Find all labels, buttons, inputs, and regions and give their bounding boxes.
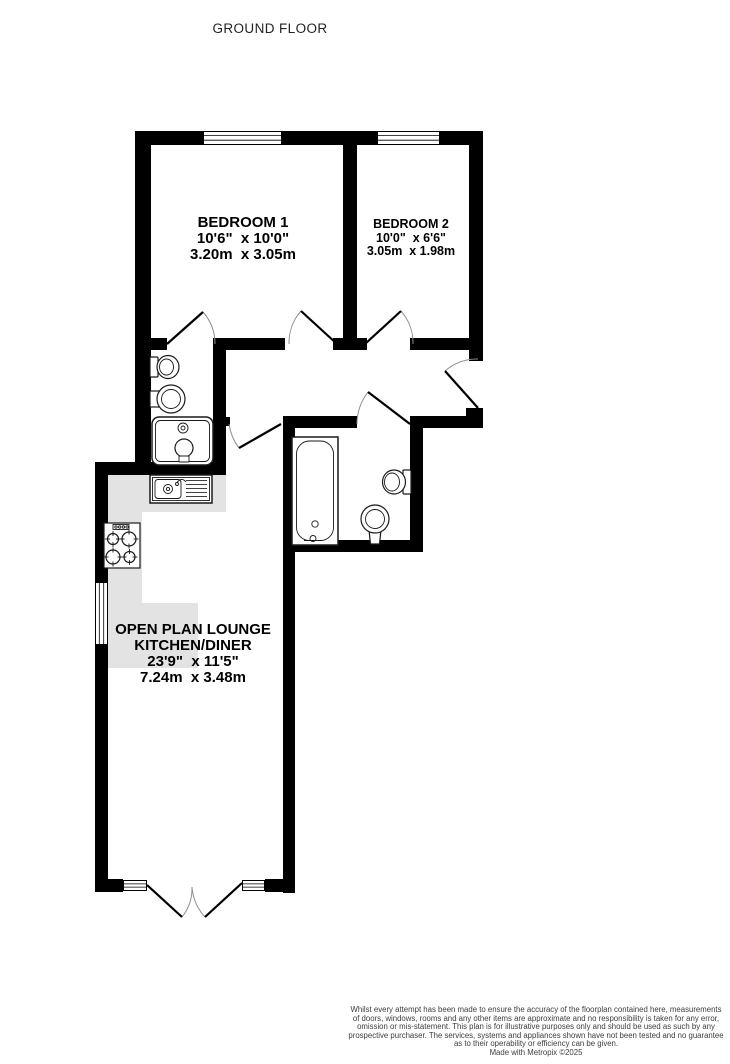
disclaimer: Whilst every attempt has been made to en…: [340, 1006, 730, 1057]
page-title: GROUND FLOOR: [145, 21, 395, 36]
wall-segment: [410, 416, 423, 552]
kitchen-sink-fixture: [150, 475, 212, 503]
bedroom2-size-imperial: 10'0" x 6'6": [341, 232, 481, 246]
bedroom2-name: BEDROOM 2: [341, 218, 481, 232]
hall-kitchen-door-arc: [229, 424, 239, 448]
hall-kitchen-door-leaf: [239, 424, 281, 448]
bathroom-toilet-fixture: [383, 470, 412, 494]
bedroom2-door-leaf: [365, 311, 401, 344]
bedroom2-window: [378, 132, 440, 145]
bathroom-basin-fixture: [361, 505, 389, 544]
patio-door-arc-left: [182, 887, 192, 917]
wall-segment: [410, 338, 483, 350]
door-arcs: [182, 311, 478, 917]
wall-segment: [135, 338, 167, 350]
ensuite-toilet-fixture: [150, 356, 179, 379]
bathroom-door-leaf: [368, 392, 410, 424]
patio-door-arc-right: [192, 887, 205, 917]
front-door-leaf: [445, 371, 478, 408]
wall-segment: [135, 131, 151, 475]
credit-line: Made with Metropix ©2025: [340, 1049, 730, 1058]
bathroom-door-arc: [357, 392, 368, 424]
bedroom1-size-metric: 3.20m x 3.05m: [163, 247, 323, 263]
lounge-label: OPEN PLAN LOUNGE KITCHEN/DINER 23'9" x 1…: [103, 622, 283, 686]
patio-sidelight-right: [243, 881, 265, 891]
wall-segment: [283, 416, 357, 428]
bedroom1-door-arc: [289, 311, 301, 344]
wall-segment: [95, 879, 123, 892]
bedroom2-label: BEDROOM 2 10'0" x 6'6" 3.05m x 1.98m: [341, 218, 481, 259]
bedroom1-label: BEDROOM 1 10'6" x 10'0" 3.20m x 3.05m: [163, 215, 323, 263]
bedroom1-size-imperial: 10'6" x 10'0": [163, 231, 323, 247]
bath-fixture: [292, 437, 338, 545]
bedroom2-size-metric: 3.05m x 1.98m: [341, 245, 481, 259]
lounge-name-line2: KITCHEN/DINER: [103, 638, 283, 654]
wall-segment: [213, 417, 230, 426]
wall-segment: [222, 338, 285, 350]
patio-door-leaf-left: [147, 885, 182, 917]
hob-fixture: [104, 523, 141, 568]
patio-sidelight-left: [124, 881, 147, 891]
lounge-size-imperial: 23'9" x 11'5": [103, 654, 283, 670]
patio-door-leaf-right: [205, 883, 242, 917]
wall-segment: [466, 408, 483, 428]
bedroom1-door-leaf: [301, 311, 337, 344]
wall-segment: [333, 338, 367, 350]
lounge-size-metric: 7.24m x 3.48m: [103, 670, 283, 686]
ensuite-basin-fixture: [150, 385, 185, 413]
bedroom1-window: [204, 132, 282, 145]
wall-segment: [282, 131, 377, 145]
floorplan-page: GROUND FLOOR BEDROOM 1 10'6" x 10'0" 3.2…: [0, 0, 730, 1064]
lounge-name-line1: OPEN PLAN LOUNGE: [103, 622, 283, 638]
wall-segment: [213, 338, 226, 475]
bedroom1-name: BEDROOM 1: [163, 215, 323, 231]
floorplan-drawing: [0, 0, 730, 1064]
ensuite-door-leaf: [167, 312, 203, 344]
shower-tray-fixture: [152, 417, 213, 465]
